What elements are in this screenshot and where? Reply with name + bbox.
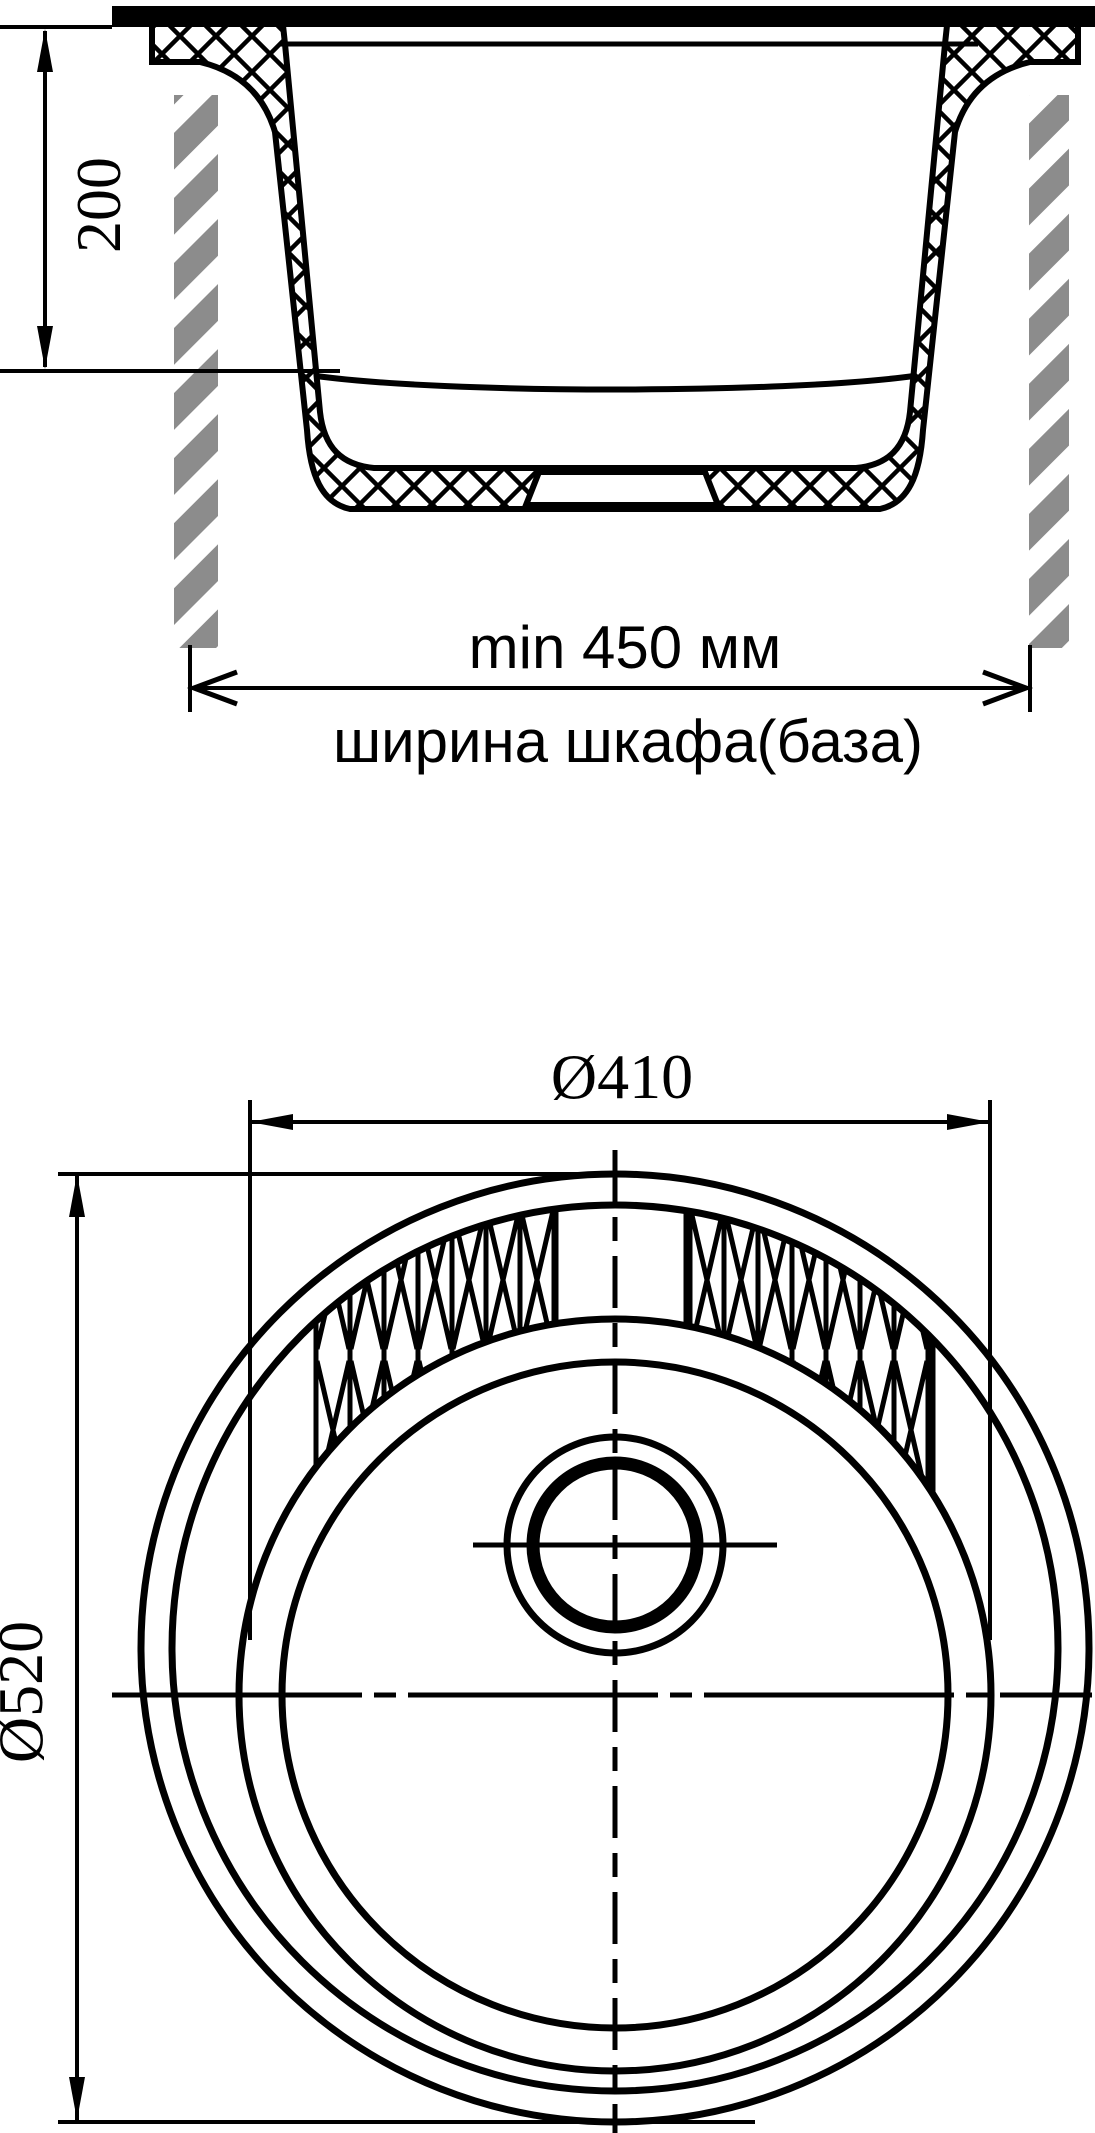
drainer-band-left: [316, 1209, 556, 1467]
depth-dim-text: 200: [63, 157, 134, 253]
cabinet-width-label-text: ширина шкафа(база): [333, 708, 923, 775]
top-view: Ø410 Ø520: [0, 1041, 1092, 2133]
overall-diameter-text: Ø520: [0, 1621, 56, 1763]
arrow-down-icon: [37, 326, 53, 369]
sink-shell-section: [152, 16, 1078, 509]
sink-technical-drawing: 200 min 450 мм ширина шкафа(база): [0, 0, 1095, 2133]
arrow-up-icon: [37, 29, 53, 72]
section-view: 200 min 450 мм ширина шкафа(база): [0, 6, 1095, 775]
arrow-left-icon: [250, 1114, 293, 1130]
bowl-diameter-text: Ø410: [551, 1041, 693, 1112]
technical-drawing-page: 200 min 450 мм ширина шкафа(база): [0, 0, 1095, 2133]
dimension-cabinet-width: min 450 мм ширина шкафа(база): [190, 614, 1030, 775]
arrow-right-icon: [947, 1114, 990, 1130]
arrow-up-icon: [69, 1174, 85, 1217]
arrow-down-icon: [69, 2077, 85, 2120]
cabinet-panel-right: [1029, 95, 1069, 648]
bowl-bottom-line: [316, 376, 914, 390]
countertop-band: [112, 6, 1095, 27]
cabinet-width-value-text: min 450 мм: [469, 614, 782, 681]
drainer-band-right: [686, 1211, 933, 1494]
